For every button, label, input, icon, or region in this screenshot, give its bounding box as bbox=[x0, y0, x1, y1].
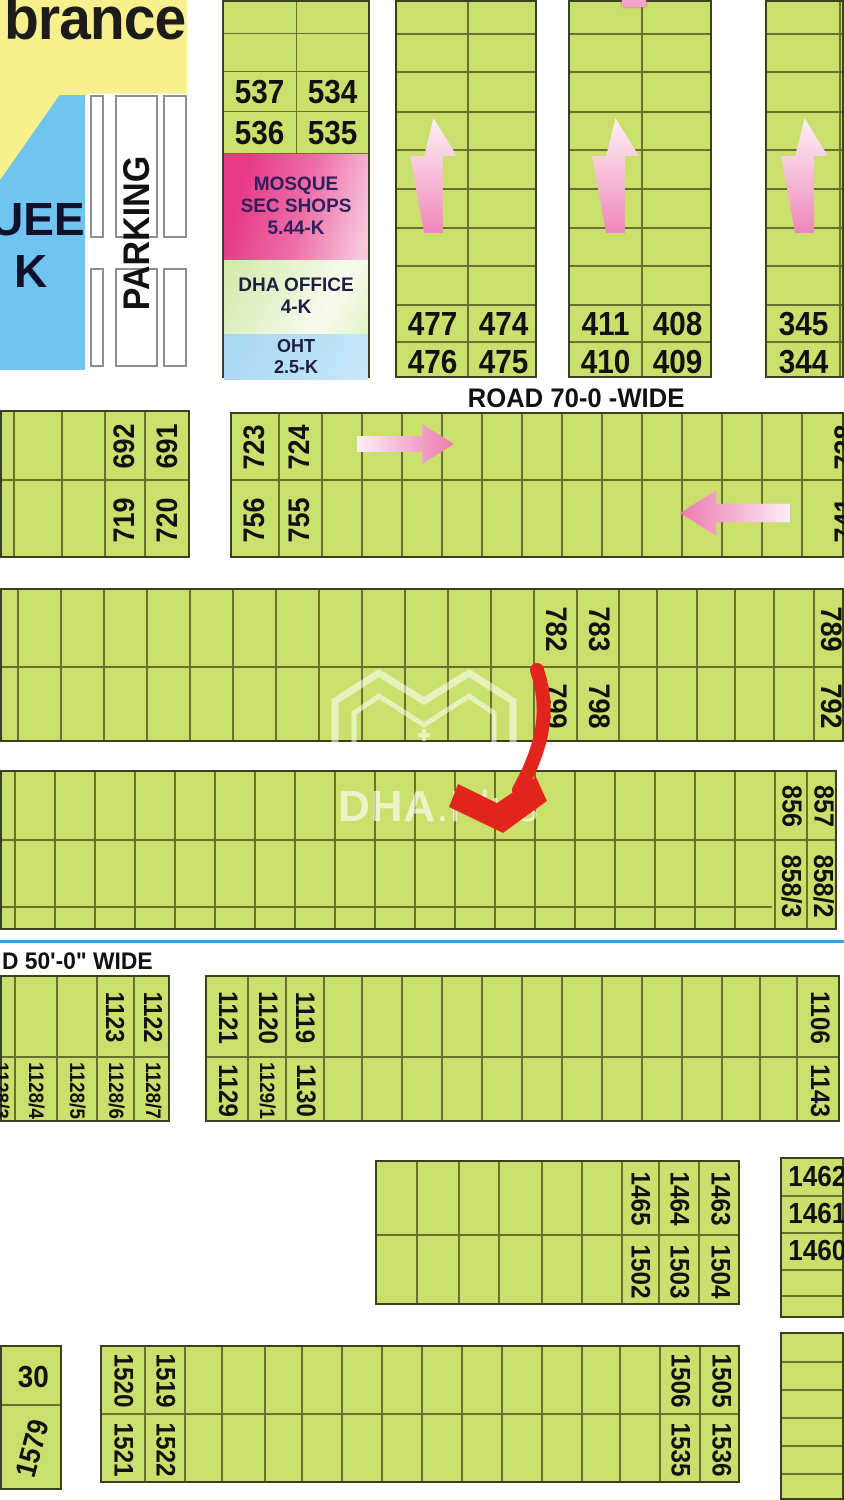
grid-line bbox=[2, 839, 835, 841]
band-d2: 112111201119110611291129/111301143 bbox=[205, 975, 840, 1122]
grid-line bbox=[134, 772, 136, 928]
plot-number: 1463 bbox=[699, 1162, 742, 1235]
plot-number: 1521 bbox=[102, 1414, 145, 1485]
band-e2: 146214611460 bbox=[780, 1157, 844, 1318]
grid-line bbox=[782, 1361, 842, 1363]
grid-line bbox=[601, 977, 603, 1120]
plot-number: 1128/7 bbox=[134, 1057, 172, 1124]
grid-line bbox=[601, 414, 603, 556]
parking-label: PARKING bbox=[113, 130, 161, 335]
plot-number: 1128/3 bbox=[0, 1057, 7, 1124]
plot-number: 1504 bbox=[699, 1235, 742, 1307]
plot-number: 1128/6 bbox=[97, 1057, 134, 1124]
plot-number: 782 bbox=[534, 590, 577, 667]
plot-cell bbox=[224, 34, 297, 72]
plot-number: 720 bbox=[145, 480, 192, 560]
grid-line bbox=[416, 1162, 418, 1303]
dha-plus-watermark: DHA.Plus bbox=[338, 782, 539, 832]
plot-number: 719 bbox=[105, 480, 145, 560]
parking-stall bbox=[90, 95, 104, 238]
grid-line bbox=[102, 1413, 738, 1415]
grid-line bbox=[721, 977, 723, 1120]
plot-number: 858/3 bbox=[775, 840, 807, 932]
band-f0: 157930 bbox=[0, 1345, 62, 1490]
plot-number: 692 bbox=[105, 412, 145, 480]
plot-number: 1123 bbox=[97, 977, 134, 1057]
grid-line bbox=[397, 227, 535, 229]
pink-arrow-stub bbox=[622, 0, 646, 7]
grid-line bbox=[397, 33, 535, 35]
grid-line bbox=[759, 977, 761, 1120]
plot-number: 1130 bbox=[286, 1057, 324, 1124]
grid-line bbox=[570, 227, 710, 229]
plot-number: 1129 bbox=[207, 1057, 248, 1124]
grid-line bbox=[761, 414, 763, 556]
grid-line bbox=[782, 1445, 842, 1447]
grid-line bbox=[782, 1417, 842, 1419]
plot-number: 691 bbox=[145, 412, 192, 480]
mosque-park-label-line1: UEE bbox=[0, 192, 85, 246]
plot-cell bbox=[297, 34, 369, 72]
grid-line bbox=[481, 977, 483, 1120]
grid-line bbox=[570, 71, 710, 73]
grid-line bbox=[397, 265, 535, 267]
plot-number: 1505 bbox=[700, 1347, 742, 1414]
plot-number: 1128/4 bbox=[15, 1057, 57, 1124]
grid-line bbox=[254, 772, 256, 928]
plot-number: 856 bbox=[775, 772, 807, 840]
band-f3 bbox=[780, 1332, 844, 1500]
grid-line bbox=[318, 590, 320, 740]
plot-number: 411 bbox=[570, 305, 642, 342]
grid-line bbox=[361, 977, 363, 1120]
grid-line bbox=[458, 1162, 460, 1303]
parking-stall bbox=[90, 268, 104, 367]
plot-number: 1522 bbox=[145, 1414, 185, 1485]
plot-number: 789 bbox=[814, 590, 844, 667]
grid-line bbox=[641, 414, 643, 556]
plot-number: 1121 bbox=[207, 977, 248, 1057]
grid-line bbox=[782, 1389, 842, 1391]
plot-cell bbox=[224, 2, 297, 34]
grid-line bbox=[401, 977, 403, 1120]
plot-number: 408 bbox=[642, 305, 714, 342]
grid-line bbox=[767, 111, 842, 113]
plot-number: 857 bbox=[807, 772, 839, 840]
grid-line bbox=[782, 1473, 842, 1475]
grid-line bbox=[696, 590, 698, 740]
plot-number: 724 bbox=[279, 414, 322, 480]
grid-line bbox=[681, 977, 683, 1120]
plot-number: 537 bbox=[224, 72, 297, 112]
plot-number: 1579 bbox=[2, 1405, 64, 1492]
plot-number: 1143 bbox=[797, 1057, 842, 1124]
plot-number: 30 bbox=[2, 1347, 64, 1405]
grid-line bbox=[773, 590, 775, 740]
plot-number: 1502 bbox=[622, 1235, 659, 1307]
grid-line bbox=[61, 412, 63, 556]
grid-line bbox=[681, 414, 683, 556]
grid-line bbox=[441, 414, 443, 556]
grid-line bbox=[570, 111, 710, 113]
plot-number: 1462 bbox=[782, 1159, 844, 1196]
dha-plot-map: brance UEE K PARKING 537 534 536 535 MOS… bbox=[0, 0, 844, 1500]
plot-number: 477 bbox=[397, 305, 468, 342]
grid-line bbox=[561, 414, 563, 556]
plot-number: 1503 bbox=[659, 1235, 699, 1307]
grid-line bbox=[232, 590, 234, 740]
dha-office-parcel: DHA OFFICE 4-K bbox=[224, 260, 368, 334]
grid-line bbox=[232, 479, 842, 481]
plot-number: 345 bbox=[767, 305, 840, 342]
grid-line bbox=[541, 1162, 543, 1303]
grid-line bbox=[734, 772, 736, 928]
grid-line bbox=[189, 590, 191, 740]
plot-number: 798 bbox=[577, 667, 619, 744]
grid-line bbox=[94, 772, 96, 928]
plot-number: 783 bbox=[577, 590, 619, 667]
grid-line bbox=[334, 772, 336, 928]
plot-number: 858/2 bbox=[807, 840, 839, 932]
grid-line bbox=[13, 412, 15, 556]
band-b: 782799783798789792 bbox=[0, 588, 844, 742]
grid-line bbox=[570, 33, 710, 35]
grid-line bbox=[2, 666, 842, 668]
plot-number: 1460 bbox=[782, 1233, 844, 1270]
grid-line bbox=[481, 414, 483, 556]
road-edge-line bbox=[0, 940, 844, 943]
grid-line bbox=[174, 772, 176, 928]
plot-number: 1520 bbox=[102, 1347, 145, 1414]
grid-line bbox=[721, 414, 723, 556]
plot-cell bbox=[297, 2, 369, 34]
plot-number: 1461 bbox=[782, 1196, 844, 1233]
band-a2: 723756724755738741 bbox=[230, 412, 844, 558]
plot-number: 1122 bbox=[134, 977, 172, 1057]
grid-line bbox=[275, 590, 277, 740]
grid-line bbox=[441, 977, 443, 1120]
plot-number: 1535 bbox=[660, 1414, 700, 1485]
grid-line bbox=[570, 265, 710, 267]
parking-stall bbox=[163, 95, 187, 238]
plot-number: 1106 bbox=[797, 977, 842, 1057]
grid-line bbox=[447, 590, 449, 740]
plot-number: 792 bbox=[814, 667, 844, 744]
plot-number: 1129/1 bbox=[248, 1057, 286, 1124]
grid-line bbox=[294, 772, 296, 928]
grid-line bbox=[767, 265, 842, 267]
grid-line bbox=[654, 772, 656, 928]
grid-line bbox=[361, 590, 363, 740]
grid-line bbox=[581, 1162, 583, 1303]
grid-line bbox=[767, 71, 842, 73]
mosque-park-label-line2: K bbox=[14, 244, 47, 298]
band-f2: 15201519150615051521152215351536 bbox=[100, 1345, 740, 1483]
plot-number: 344 bbox=[767, 342, 840, 380]
grid-line bbox=[17, 590, 19, 740]
grid-line bbox=[521, 414, 523, 556]
grid-line bbox=[614, 772, 616, 928]
grid-line bbox=[521, 977, 523, 1120]
road-70-label: ROAD 70-0 -WIDE bbox=[428, 383, 724, 414]
plot-number: 1536 bbox=[700, 1414, 742, 1485]
grid-line bbox=[214, 772, 216, 928]
grid-line bbox=[2, 906, 772, 908]
grid-line bbox=[404, 590, 406, 740]
grid-line bbox=[60, 590, 62, 740]
plot-number: 755 bbox=[279, 480, 322, 560]
road-50-label: D 50'-0" WIDE bbox=[2, 948, 153, 976]
mosque-sec-shops-parcel: MOSQUE SEC SHOPS 5.44-K bbox=[224, 154, 368, 260]
grid-line bbox=[561, 977, 563, 1120]
grid-line bbox=[498, 1162, 500, 1303]
parking-stall bbox=[163, 268, 187, 367]
plot-number: 1464 bbox=[659, 1162, 699, 1235]
grid-line bbox=[397, 111, 535, 113]
grid-line bbox=[734, 590, 736, 740]
grid-line bbox=[401, 414, 403, 556]
grid-line bbox=[14, 772, 16, 928]
grid-line bbox=[641, 977, 643, 1120]
plot-number: 475 bbox=[468, 342, 539, 380]
grid-line bbox=[767, 33, 842, 35]
grid-line bbox=[574, 772, 576, 928]
plot-number: 738 bbox=[824, 414, 844, 480]
plot-number: 1465 bbox=[622, 1162, 659, 1235]
plot-number: 1519 bbox=[145, 1347, 185, 1414]
grid-line bbox=[570, 188, 710, 190]
plot-number: 1506 bbox=[660, 1347, 700, 1414]
plot-number: 741 bbox=[824, 480, 844, 560]
plot-number: 799 bbox=[534, 667, 577, 744]
band-a1: 692719691720 bbox=[0, 410, 190, 558]
grid-line bbox=[146, 590, 148, 740]
band-e1: 146514641463150215031504 bbox=[375, 1160, 740, 1305]
facility-column: 537 534 536 535 MOSQUE SEC SHOPS 5.44-K … bbox=[222, 0, 370, 378]
plot-number: 1120 bbox=[248, 977, 286, 1057]
plot-number: 1119 bbox=[286, 977, 324, 1057]
band-d1: 112311221128/31128/41128/51128/61128/7 bbox=[0, 975, 170, 1122]
grid-line bbox=[801, 414, 803, 556]
plot-number: 756 bbox=[232, 480, 279, 560]
plot-number: 723 bbox=[232, 414, 279, 480]
grid-line bbox=[54, 772, 56, 928]
plot-number: 1128/5 bbox=[57, 1057, 97, 1124]
top-block-2: 411408410409 bbox=[568, 0, 712, 378]
grid-line bbox=[397, 149, 535, 151]
plot-number: 409 bbox=[642, 342, 714, 380]
plot-number: 534 bbox=[297, 72, 369, 112]
oht-parcel: OHT 2.5-K bbox=[224, 334, 368, 380]
grid-line bbox=[570, 149, 710, 151]
grid-line bbox=[782, 1295, 842, 1297]
plot-number: 535 bbox=[297, 112, 369, 154]
grid-line bbox=[361, 414, 363, 556]
park-name-label: brance bbox=[4, 0, 185, 53]
plot-number: 476 bbox=[397, 342, 468, 380]
grid-line bbox=[103, 590, 105, 740]
plot-number: 536 bbox=[224, 112, 297, 154]
grid-line bbox=[656, 590, 658, 740]
plot-number: 474 bbox=[468, 305, 539, 342]
grid-line bbox=[490, 590, 492, 740]
grid-line bbox=[694, 772, 696, 928]
plot-number: 410 bbox=[570, 342, 642, 380]
grid-line bbox=[397, 71, 535, 73]
